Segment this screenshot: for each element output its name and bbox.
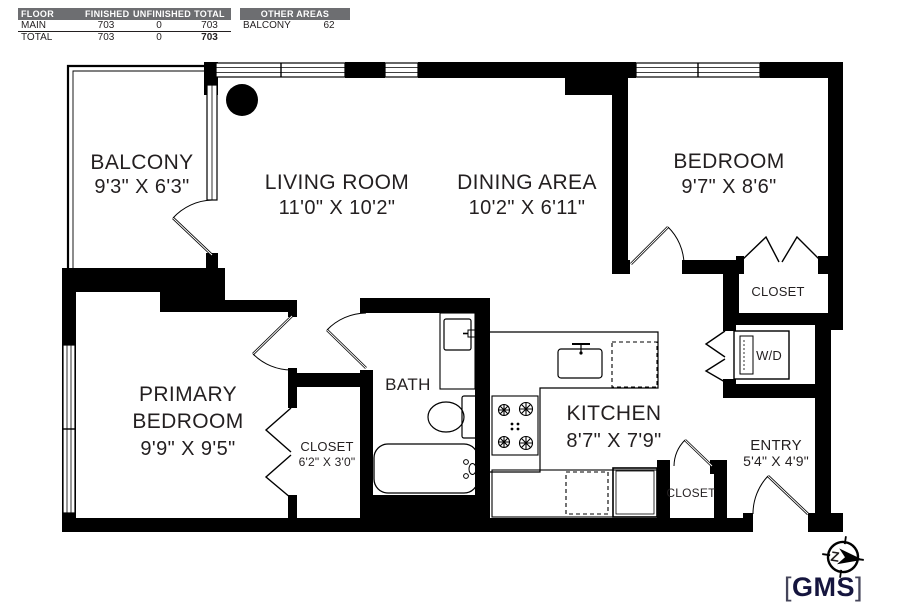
balcony-label: BALCONY — [90, 151, 193, 174]
primary-closet-bifold-doors — [266, 408, 291, 498]
floor-plan-page: FLOOR FINISHED UNFINISHED TOTAL MAIN 703… — [0, 0, 910, 606]
bedroom-closet-label: CLOSET — [751, 284, 804, 299]
bath-label: BATH — [385, 375, 431, 394]
washer-dryer-label: W/D — [756, 348, 782, 363]
living-room-label: LIVING ROOM — [265, 171, 409, 194]
entry-closet-label: CLOSET — [666, 486, 716, 500]
primary-bedroom-label-1: PRIMARY — [139, 383, 237, 406]
bedroom-label: BEDROOM — [673, 150, 784, 173]
burner — [498, 436, 510, 448]
logo-text: GMS — [792, 572, 855, 602]
entry-dims: 5'4" X 4'9" — [743, 453, 809, 469]
kitchen-sink — [558, 344, 602, 378]
toilet — [428, 396, 477, 438]
kitchen-dims: 8'7" X 7'9" — [566, 430, 661, 452]
burner — [520, 403, 533, 416]
fridge — [613, 468, 657, 517]
stove — [492, 396, 538, 455]
bedroom-window — [636, 63, 760, 77]
kitchen-label: KITCHEN — [567, 402, 662, 425]
entry-label: ENTRY — [750, 437, 802, 454]
balcony-dims: 9'3" X 6'3" — [94, 176, 189, 198]
floor-plan-drawing: BALCONY 9'3" X 6'3" LIVING ROOM 11'0" X … — [0, 0, 910, 606]
primary-closet-dims: 6'2" X 3'0" — [299, 455, 356, 469]
kitchen-lower-counter — [492, 468, 657, 517]
living-room-dims: 11'0" X 10'2" — [279, 197, 396, 219]
burner — [498, 404, 510, 416]
logo-bracket-right: ] — [855, 572, 863, 602]
primary-bedroom-label-2: BEDROOM — [132, 410, 243, 433]
walls — [62, 62, 843, 532]
dining-area-dims: 10'2" X 6'11" — [469, 197, 586, 219]
primary-bedroom-door — [253, 316, 292, 370]
logo-bracket-left: [ — [784, 572, 792, 602]
bedroom-door — [631, 227, 684, 264]
burner — [520, 437, 533, 450]
primary-closet-label: CLOSET — [300, 439, 353, 454]
oven — [566, 472, 608, 514]
bedroom-dims: 9'7" X 8'6" — [681, 176, 776, 198]
dishwasher — [612, 342, 657, 387]
dining-window — [385, 63, 418, 77]
dining-area-label: DINING AREA — [457, 171, 597, 194]
entry-closet-door — [674, 440, 712, 466]
entry-door — [753, 476, 808, 514]
compass-arrow — [837, 548, 864, 567]
structural-column — [226, 84, 258, 116]
balcony-slider-window — [207, 85, 217, 200]
primary-bedroom-dims: 9'9" X 9'5" — [140, 438, 235, 460]
gms-logo: [GMS] — [784, 572, 904, 603]
wd-closet-bifold-doors — [706, 331, 725, 382]
bathtub — [374, 444, 478, 493]
primary-bedroom-window — [63, 345, 75, 513]
balcony-door — [173, 200, 212, 255]
bath-door — [327, 313, 366, 368]
living-room-window — [216, 63, 345, 77]
bedroom-closet-bifold-doors — [740, 237, 822, 262]
bath-vanity — [440, 313, 477, 389]
